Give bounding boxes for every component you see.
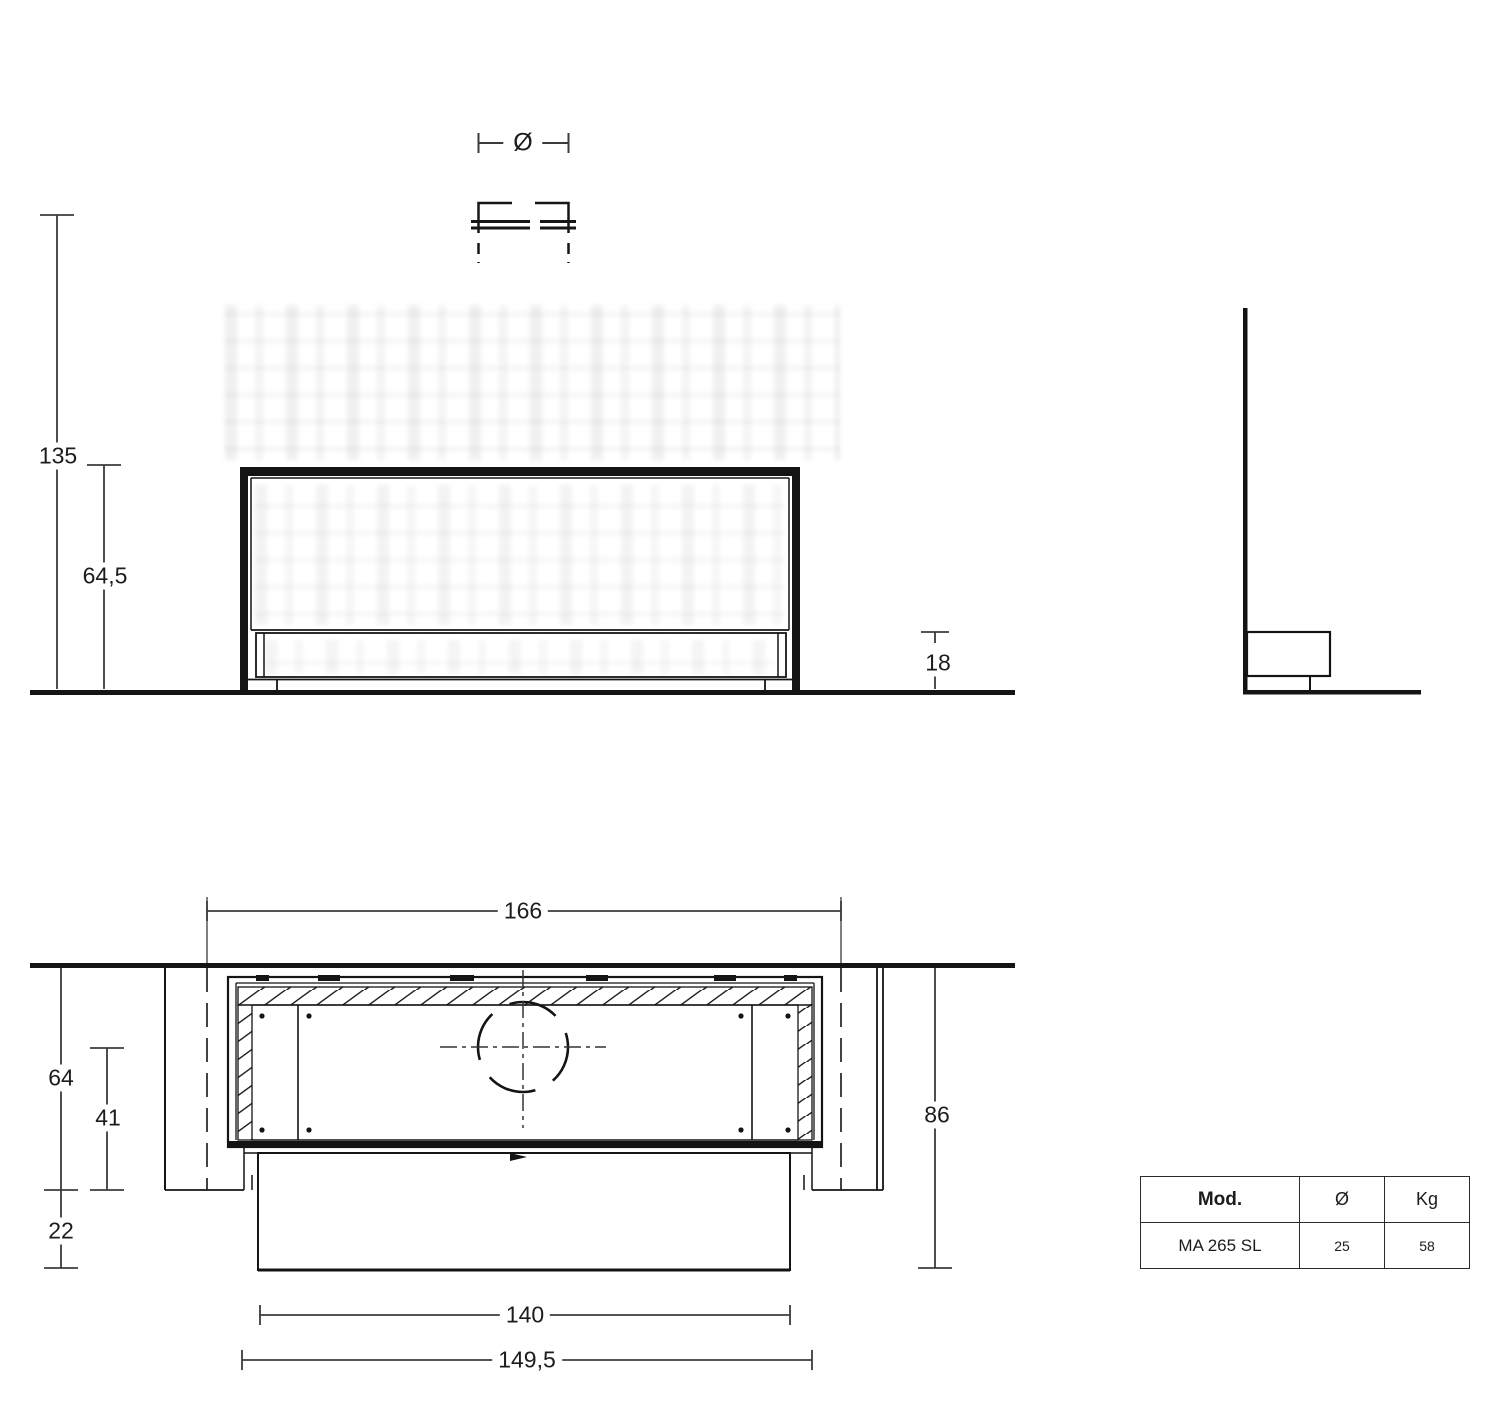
plan-wall-line <box>30 963 1015 968</box>
spec-table-data-row: MA 265 SL 25 58 <box>1141 1223 1470 1269</box>
spec-value-kg: 58 <box>1385 1223 1470 1269</box>
side-ground-line <box>1243 690 1421 695</box>
plan-view <box>30 897 1015 1270</box>
front-ground-line <box>30 690 1015 695</box>
insulation-hatch-right <box>798 1005 812 1140</box>
screw-dots <box>259 1013 790 1132</box>
dim-label-64: 64 <box>42 1065 80 1092</box>
dim-label-41: 41 <box>89 1105 127 1132</box>
spec-value-diameter: 25 <box>1300 1223 1385 1269</box>
dim-label-18: 18 <box>919 650 957 677</box>
dim-label-140: 140 <box>500 1302 550 1329</box>
spec-header-diameter: Ø <box>1300 1177 1385 1223</box>
spec-table-header-row: Mod. Ø Kg <box>1141 1177 1470 1223</box>
front-panel <box>258 1153 790 1270</box>
spec-value-model: MA 265 SL <box>1141 1223 1300 1269</box>
dim-label-135: 135 <box>33 443 83 470</box>
dim-label-149-5: 149,5 <box>492 1347 562 1374</box>
spec-header-mod: Mod. <box>1141 1177 1300 1223</box>
insulation-hatch-left <box>238 1005 252 1140</box>
panel-arrow-mark <box>510 1153 527 1161</box>
technical-drawing-canvas: Ø 135 64,5 18 166 64 41 22 86 140 149,5 … <box>0 0 1500 1427</box>
diameter-symbol-label: Ø <box>503 129 542 158</box>
front-view <box>30 467 1015 695</box>
dim-label-166: 166 <box>498 898 548 925</box>
spec-header-kg: Kg <box>1385 1177 1470 1223</box>
flue-pipe-symbol <box>471 203 576 263</box>
dim-label-22: 22 <box>42 1218 80 1245</box>
spec-table: Mod. Ø Kg MA 265 SL 25 58 <box>1140 1176 1470 1269</box>
dim-label-64-5: 64,5 <box>77 563 134 590</box>
dim-label-86: 86 <box>918 1102 956 1129</box>
side-view <box>1243 308 1421 695</box>
